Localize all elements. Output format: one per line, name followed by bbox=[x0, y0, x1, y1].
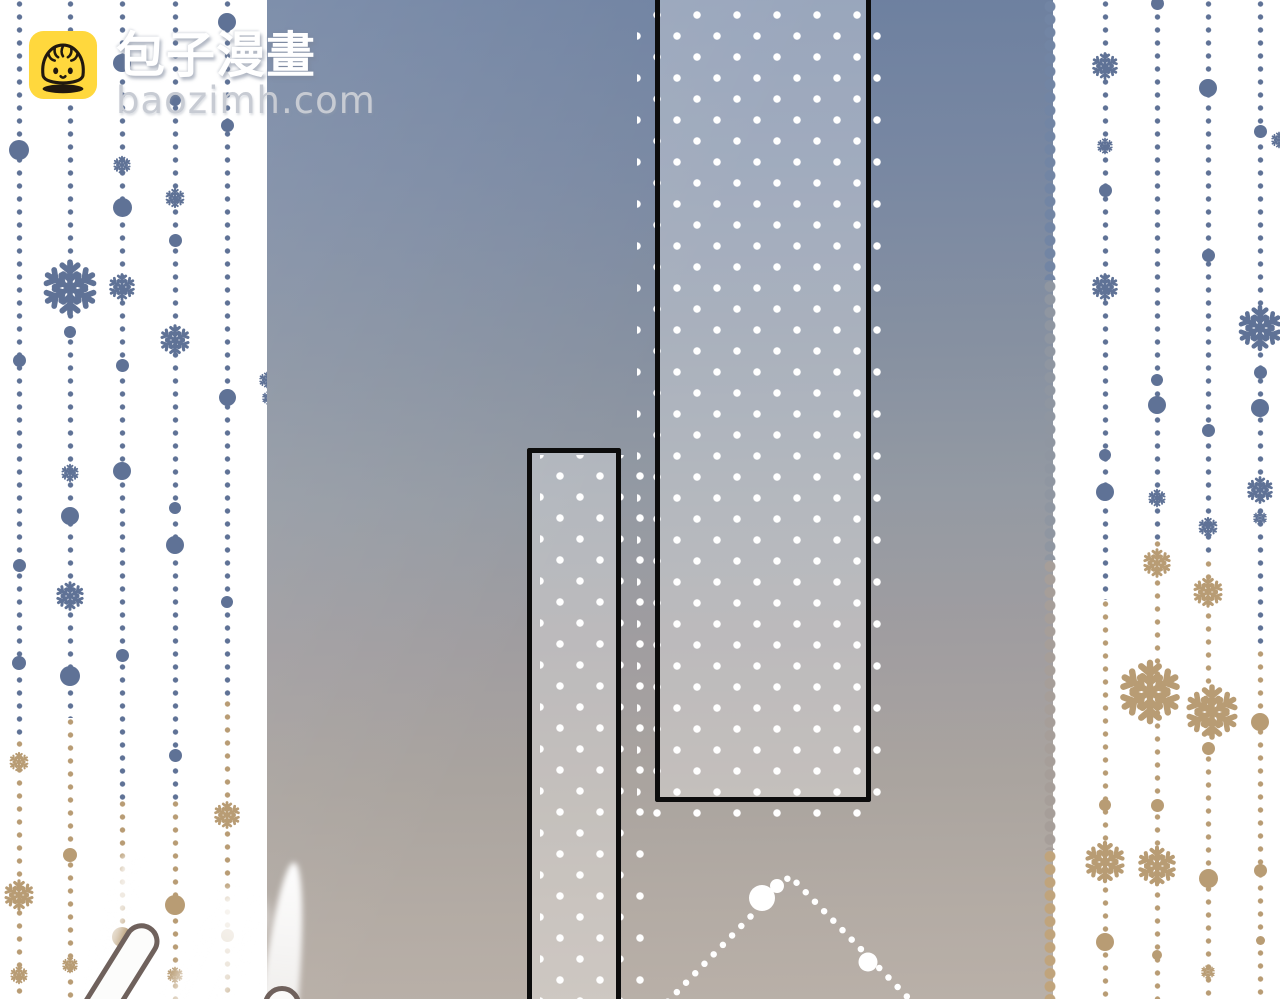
snowflake-icon bbox=[1082, 839, 1128, 885]
snowflake-icon bbox=[2, 878, 36, 912]
snowflake-icon bbox=[1197, 516, 1219, 538]
snowflake-icon bbox=[1135, 844, 1179, 888]
chevron-dotted-line bbox=[267, 0, 1053, 999]
panel-edge-fringe-segment bbox=[1044, 0, 1056, 280]
ornament-bead bbox=[1151, 799, 1164, 812]
ornament-bead bbox=[64, 326, 76, 338]
snowflake-icon bbox=[54, 580, 86, 612]
snowflake-icon bbox=[39, 257, 101, 319]
comic-panel bbox=[267, 0, 1053, 999]
hanging-string bbox=[1205, 560, 1212, 999]
ornament-bead bbox=[1152, 950, 1162, 960]
snowflake-icon bbox=[212, 800, 242, 830]
ornament-bead bbox=[1199, 79, 1217, 97]
snowflake-icon bbox=[1090, 272, 1120, 302]
panel-edge-fringe-segment bbox=[1044, 850, 1056, 999]
snowflake-icon bbox=[1235, 303, 1280, 353]
ornament-bead bbox=[1254, 366, 1267, 379]
ornament-bead bbox=[12, 656, 26, 670]
hanging-string bbox=[16, 740, 23, 999]
ornament-bead bbox=[1099, 449, 1111, 461]
ornament-bead bbox=[113, 198, 132, 217]
snowflake-icon bbox=[158, 323, 192, 357]
ornament-bead bbox=[1202, 742, 1215, 755]
snowflake-icon bbox=[112, 155, 132, 175]
panel-edge-fringe-segment bbox=[1044, 280, 1056, 560]
ornament-bead bbox=[113, 462, 131, 480]
snowflake-icon bbox=[1252, 510, 1268, 526]
ornament-bead bbox=[221, 596, 233, 608]
ornament-bead bbox=[13, 354, 26, 367]
ornament-bead bbox=[219, 389, 236, 406]
ornament-bead bbox=[1202, 424, 1215, 437]
snowflake-icon bbox=[1270, 131, 1280, 149]
hanging-string bbox=[16, 0, 23, 740]
snowflake-icon bbox=[1096, 137, 1114, 155]
ornament-bead bbox=[169, 502, 181, 514]
site-watermark: 包子漫畫 baozimh.com bbox=[28, 30, 376, 120]
snowflake-icon bbox=[107, 272, 137, 302]
ornament-bead bbox=[1256, 936, 1265, 945]
snowflake-icon bbox=[258, 371, 267, 389]
site-name: 包子漫畫 bbox=[116, 30, 376, 82]
snowflake-icon bbox=[1245, 475, 1275, 505]
left-margin-decoration bbox=[0, 0, 267, 999]
ornament-bead bbox=[116, 359, 129, 372]
snowflake-icon bbox=[61, 956, 79, 974]
snowflake-icon bbox=[1200, 964, 1216, 980]
right-margin-decoration bbox=[1053, 0, 1280, 999]
comic-page: 包子漫畫 baozimh.com bbox=[0, 0, 1280, 999]
ornament-bead bbox=[1096, 483, 1114, 501]
ornament-bead bbox=[1199, 869, 1218, 888]
ornament-bead bbox=[1148, 396, 1166, 414]
ornament-bead bbox=[166, 536, 184, 554]
ornament-bead bbox=[1151, 0, 1164, 10]
snowflake-icon bbox=[1182, 682, 1242, 742]
ornament-bead bbox=[9, 140, 29, 160]
ornament-bead bbox=[1254, 125, 1267, 138]
hanging-string bbox=[1154, 540, 1161, 999]
ornament-bead bbox=[63, 848, 77, 862]
snowflake-icon bbox=[60, 463, 80, 483]
watermark-text: 包子漫畫 baozimh.com bbox=[116, 30, 376, 120]
ornament-bead bbox=[1151, 374, 1163, 386]
snowflake-icon bbox=[1191, 575, 1225, 609]
ornament-bead bbox=[1202, 249, 1215, 262]
ornament-bead bbox=[1096, 933, 1114, 951]
ornament-bead bbox=[1099, 799, 1111, 811]
snowflake-icon bbox=[1115, 657, 1185, 727]
ornament-bead bbox=[169, 234, 182, 247]
ornament-bead bbox=[1251, 713, 1269, 731]
ornament-bead bbox=[1254, 864, 1267, 877]
snowflake-icon bbox=[8, 751, 30, 773]
ornament-bead bbox=[1251, 399, 1269, 417]
hanging-string bbox=[1154, 0, 1161, 540]
snowflake-icon bbox=[9, 965, 29, 985]
snowflake-icon bbox=[261, 390, 267, 406]
panel-edge-fringe-segment bbox=[1044, 560, 1056, 850]
snowflake-icon bbox=[1090, 51, 1120, 81]
baozi-bun-icon bbox=[28, 30, 98, 100]
ornament-bead bbox=[13, 559, 26, 572]
ornament-bead bbox=[116, 649, 129, 662]
snowflake-icon bbox=[164, 187, 186, 209]
ornament-bead bbox=[1099, 184, 1112, 197]
ornament-bead bbox=[165, 895, 185, 915]
ornament-bead bbox=[61, 507, 79, 525]
snowflake-icon bbox=[1147, 488, 1167, 508]
site-url: baozimh.com bbox=[116, 82, 376, 120]
ornament-bead bbox=[169, 749, 182, 762]
snowflake-icon bbox=[1141, 547, 1173, 579]
ornament-bead bbox=[60, 666, 80, 686]
hanging-string bbox=[1257, 650, 1264, 999]
